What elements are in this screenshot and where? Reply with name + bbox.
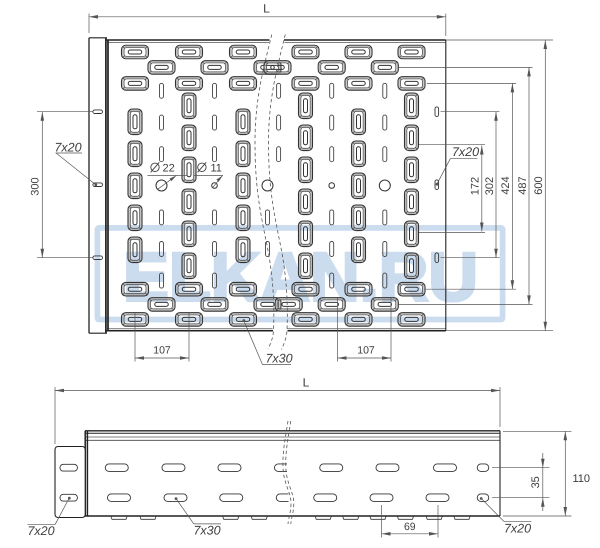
svg-text:22: 22 (163, 163, 175, 175)
svg-text:7x20: 7x20 (504, 522, 531, 536)
svg-text:7x20: 7x20 (54, 141, 81, 155)
svg-text:69: 69 (404, 521, 416, 533)
svg-text:107: 107 (153, 345, 171, 357)
svg-text:300: 300 (30, 177, 42, 195)
svg-text:L: L (263, 2, 270, 16)
svg-text:600: 600 (533, 176, 545, 194)
svg-text:7x20: 7x20 (452, 145, 479, 159)
svg-text:110: 110 (573, 473, 591, 485)
svg-text:424: 424 (500, 176, 512, 194)
svg-text:11: 11 (211, 163, 222, 175)
svg-text:302: 302 (484, 177, 496, 195)
svg-text:7x30: 7x30 (193, 524, 220, 538)
svg-text:107: 107 (357, 345, 375, 357)
svg-text:7x20: 7x20 (27, 524, 54, 538)
svg-text:7x30: 7x30 (265, 352, 292, 366)
svg-text:172: 172 (470, 177, 482, 195)
svg-text:35: 35 (530, 476, 542, 488)
svg-text:L: L (303, 376, 310, 390)
svg-text:487: 487 (517, 176, 529, 194)
